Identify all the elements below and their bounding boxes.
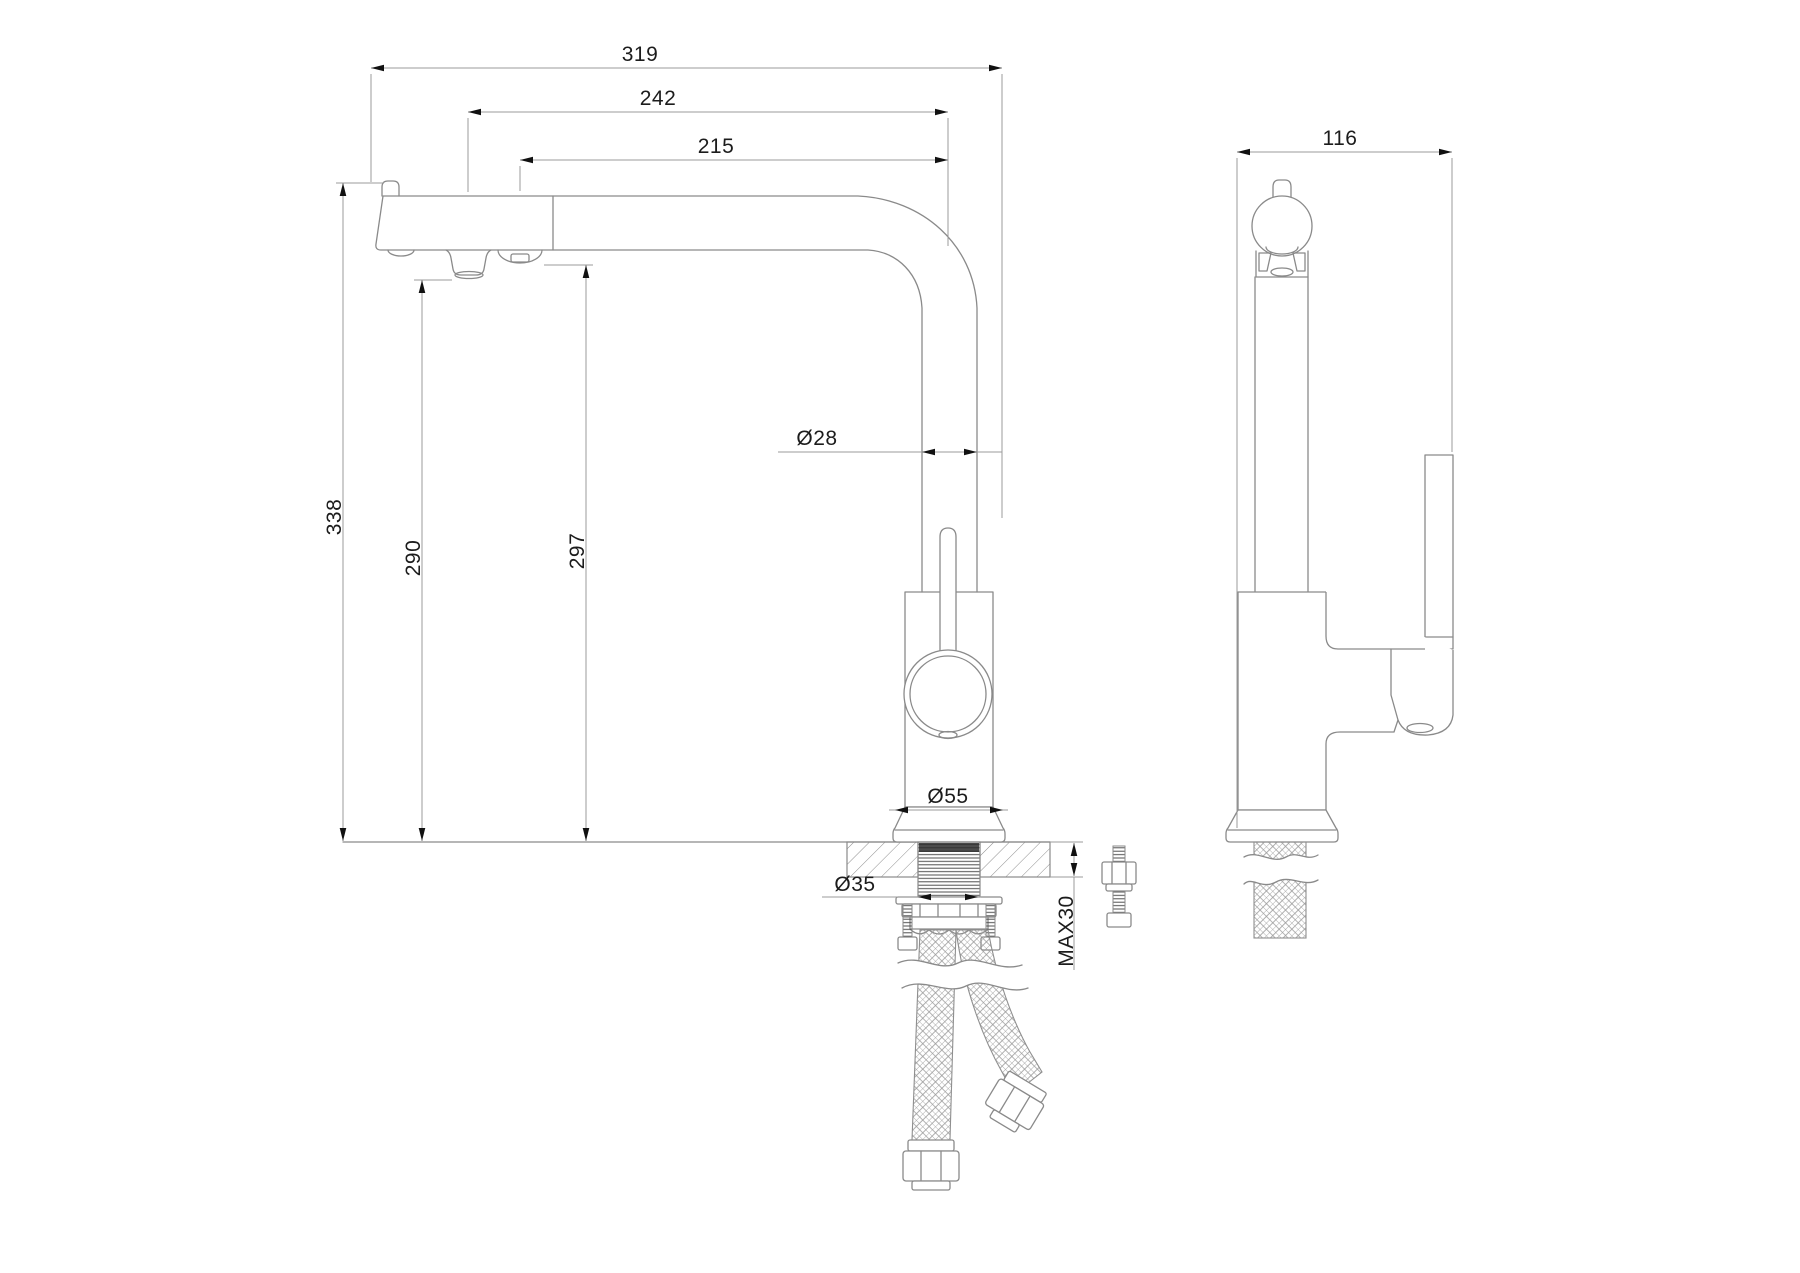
dim-reach-to-aerator: 242 <box>468 87 948 246</box>
side-spout-tip-circle <box>1252 196 1312 256</box>
shank-dark-band <box>919 843 979 852</box>
side-stud-end-nut <box>1107 913 1131 927</box>
front-view <box>343 181 1050 1190</box>
dim-hole-diameter-label: Ø35 <box>834 873 875 896</box>
outlet-dome <box>498 250 542 263</box>
side-hose <box>1244 842 1318 938</box>
spout-inner-edge <box>553 250 922 592</box>
spout-tip-foot <box>388 250 414 256</box>
dim-overall-reach: 319 <box>371 43 1002 518</box>
spanner-nut <box>910 917 988 929</box>
base-flare <box>893 807 1005 842</box>
supply-hoses <box>898 930 1050 1190</box>
dim-outlet-height-label: 297 <box>566 533 589 570</box>
side-stud-rod-bottom <box>1113 891 1125 913</box>
countertop-hatch-right <box>980 842 1050 877</box>
dim-outlet-height: 297 <box>544 265 593 841</box>
dim-counter-thickness-label: MAX30 <box>1055 895 1078 966</box>
side-stud-washer <box>1106 884 1132 891</box>
fitting-tip-left <box>912 1181 950 1190</box>
dim-spout-diameter: Ø28 <box>778 427 1002 455</box>
dim-reach-to-outlet-label: 215 <box>698 135 735 158</box>
stud-foot-left <box>898 937 917 950</box>
handle-ring-outer <box>904 650 992 738</box>
side-mounting-stud <box>1102 846 1136 927</box>
mounting-stud-left <box>903 904 912 937</box>
dim-reach-to-outlet: 215 <box>520 135 948 191</box>
dim-spout-diameter-label: Ø28 <box>796 427 837 450</box>
side-aerator-outlet <box>1271 268 1293 276</box>
side-view <box>1102 180 1453 938</box>
fitting-hex-left <box>903 1151 959 1181</box>
hose-fitting-left <box>903 1140 959 1190</box>
fitting-collar-left <box>908 1140 954 1151</box>
horseshoe-washer <box>896 897 1002 904</box>
side-base-flare <box>1226 810 1338 842</box>
hose-fitting-right <box>980 1069 1050 1139</box>
spout-outer-edge <box>553 196 977 592</box>
dim-base-diameter-label: Ø55 <box>927 785 968 808</box>
spout-tip-pin <box>382 181 399 196</box>
countertop-hatch-left <box>847 842 918 877</box>
spout-tip <box>376 196 553 250</box>
dim-aerator-height-label: 290 <box>402 540 425 577</box>
hose-right <box>956 930 1042 1094</box>
faucet-technical-drawing: 319 242 215 338 <box>0 0 1800 1273</box>
outlet-dome-port <box>511 254 529 262</box>
dim-counter-thickness: MAX30 <box>1050 842 1083 970</box>
drawing-sheet: 319 242 215 338 <box>0 0 1800 1273</box>
lock-nut <box>902 904 996 917</box>
dim-overall-height: 338 <box>323 183 384 841</box>
dim-overall-depth-label: 116 <box>1323 127 1358 150</box>
dim-overall-reach-label: 319 <box>622 43 659 66</box>
handle-stem <box>940 528 956 660</box>
dim-aerator-height: 290 <box>402 280 452 841</box>
side-handle-plate <box>1425 455 1453 649</box>
side-body <box>1238 592 1453 810</box>
mounting-shank <box>918 842 980 897</box>
dim-reach-to-aerator-label: 242 <box>640 87 677 110</box>
side-stud-rod-top <box>1113 846 1125 862</box>
side-riser <box>1255 277 1308 592</box>
side-stud-hex-nut <box>1102 862 1136 884</box>
dim-overall-height-label: 338 <box>323 499 346 536</box>
